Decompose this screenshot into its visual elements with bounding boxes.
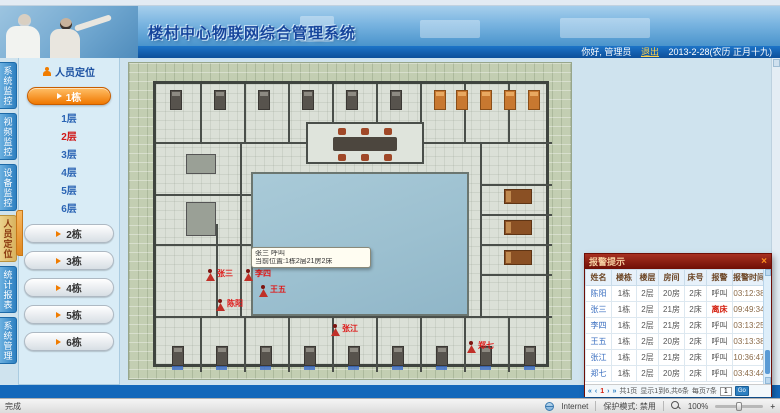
table-cell: 10:36:47 <box>733 350 766 366</box>
building-button-label: 1栋 <box>66 89 82 104</box>
table-row[interactable]: 郑七1栋2层20房2床呼叫03:43:44 <box>586 366 766 382</box>
zoom-slider-thumb[interactable] <box>736 402 742 411</box>
table-cell: 2床 <box>685 334 707 350</box>
floor-link-1[interactable]: 1层 <box>19 110 119 125</box>
status-bar: 完成 Internet 保护模式: 禁用 100% + <box>0 398 780 413</box>
table-cell: 1栋 <box>612 350 637 366</box>
table-cell: 2床 <box>685 302 707 318</box>
table-cell: 离床 <box>707 302 733 318</box>
person-marker[interactable]: 王五 <box>259 285 286 297</box>
divider <box>663 401 664 411</box>
sidebar-collapse-handle[interactable] <box>16 210 23 256</box>
floor-link-5[interactable]: 5层 <box>19 182 119 197</box>
table-cell: 呼叫 <box>707 366 733 382</box>
table-row[interactable]: 王五1栋2层20房2床呼叫03:13:38 <box>586 334 766 350</box>
floor-list: 1层2层3层4层5层6层 <box>19 110 119 215</box>
alarm-popup-titlebar[interactable]: 报警提示 × <box>585 254 771 269</box>
table-cell: 1栋 <box>612 302 637 318</box>
pagination-info: 显示1到6,共6条 <box>640 386 689 396</box>
table-cell: 王五 <box>586 334 612 350</box>
person-marker-icon <box>259 285 268 297</box>
alarm-table: 姓名楼栋楼层房间床号报警报警时间 陈阳1栋2层20房2床呼叫03:12:38张三… <box>585 269 766 382</box>
scroll-down-arrow[interactable] <box>765 377 771 384</box>
person-marker-icon <box>216 299 225 311</box>
person-marker-name: 张江 <box>342 324 358 333</box>
table-cell: 2床 <box>685 286 707 302</box>
alarm-tooltip: 张三 呼叫 当前位置:1栋2层21房2床 <box>251 247 371 268</box>
table-row[interactable]: 李四1栋2层21房2床呼叫03:13:25 <box>586 318 766 334</box>
page-title: 楼村中心物联网综合管理系统 <box>148 22 356 43</box>
person-marker-icon <box>206 269 215 281</box>
table-cell: 03:13:38 <box>733 334 766 350</box>
next-page-button[interactable]: › <box>607 388 609 395</box>
photo-person <box>74 14 112 31</box>
photo-person <box>50 29 80 58</box>
table-cell: 2床 <box>685 366 707 382</box>
side-tab-2[interactable]: 视频监控 <box>0 113 17 160</box>
table-cell: 呼叫 <box>707 318 733 334</box>
floorplan-canvas[interactable]: 张三李四王五陈阳张江郑七 张三 呼叫 当前位置:1栋2层21房2床 <box>128 62 572 380</box>
table-cell: 2层 <box>637 286 659 302</box>
side-tab-1[interactable]: 系统监控 <box>0 62 17 109</box>
person-marker-name: 郑七 <box>478 341 494 350</box>
table-cell: 呼叫 <box>707 350 733 366</box>
table-cell: 张江 <box>586 350 612 366</box>
date-text: 2013-2-28(农历 正月十九) <box>668 47 772 57</box>
status-right-cluster: Internet 保护模式: 禁用 100% + <box>545 401 775 412</box>
table-row[interactable]: 张三1栋2层21房2床离床09:49:34 <box>586 302 766 318</box>
status-text: 完成 <box>5 401 21 412</box>
table-cell: 21房 <box>659 350 685 366</box>
column-header: 报警时间 <box>733 270 766 286</box>
table-cell: 20房 <box>659 334 685 350</box>
panel-header: 人员定位 <box>19 64 119 79</box>
arrow-icon <box>56 258 61 264</box>
column-header: 床号 <box>685 270 707 286</box>
table-cell: 03:13:25 <box>733 318 766 334</box>
side-tab-6[interactable]: 系统管理 <box>0 317 17 364</box>
panel-title: 人员定位 <box>55 64 95 79</box>
building-button-label: 4栋 <box>66 280 82 295</box>
scroll-up-arrow[interactable] <box>765 269 771 276</box>
side-tab-3[interactable]: 设备监控 <box>0 164 17 211</box>
side-tab-4[interactable]: 人员定位 <box>0 215 17 262</box>
alarm-popup-title: 报警提示 <box>589 255 625 268</box>
zone-label: Internet <box>561 402 588 411</box>
zoom-level[interactable]: 100% <box>688 402 708 411</box>
column-header: 楼栋 <box>612 270 637 286</box>
person-marker-icon <box>467 341 476 353</box>
prev-page-button[interactable]: ‹ <box>595 388 597 395</box>
person-marker-icon <box>331 324 340 336</box>
banner-decoration <box>560 18 650 38</box>
arrow-icon <box>57 93 62 99</box>
arrow-icon <box>56 231 61 237</box>
building-button-4[interactable]: 4栋 <box>24 278 114 297</box>
table-cell: 呼叫 <box>707 334 733 350</box>
floor-link-2[interactable]: 2层 <box>19 128 119 143</box>
building-button-label: 2栋 <box>66 226 82 241</box>
building-button-1[interactable]: 1栋 <box>27 87 111 105</box>
photo-person <box>6 26 40 58</box>
protected-mode-label: 保护模式: 禁用 <box>603 401 655 412</box>
zoom-slider[interactable] <box>715 405 763 408</box>
table-cell: 1栋 <box>612 318 637 334</box>
table-cell: 陈阳 <box>586 286 612 302</box>
building-button-2[interactable]: 2栋 <box>24 224 114 243</box>
internet-zone-icon <box>545 402 554 411</box>
table-cell: 郑七 <box>586 366 612 382</box>
person-marker-icon <box>244 269 253 281</box>
table-cell: 李四 <box>586 318 612 334</box>
column-header: 报警 <box>707 270 733 286</box>
person-marker-name: 陈阳 <box>227 299 243 308</box>
table-row[interactable]: 张江1栋2层21房2床呼叫10:36:47 <box>586 350 766 366</box>
person-marker[interactable]: 李四 <box>244 269 271 281</box>
table-cell: 1栋 <box>612 286 637 302</box>
building-button-label: 5栋 <box>66 307 82 322</box>
table-cell: 2层 <box>637 366 659 382</box>
scrollbar-thumb[interactable] <box>765 350 770 374</box>
column-header: 楼层 <box>637 270 659 286</box>
alarm-table-header-row: 姓名楼栋楼层房间床号报警报警时间 <box>586 270 766 286</box>
table-cell: 2层 <box>637 302 659 318</box>
table-cell: 2层 <box>637 334 659 350</box>
floor-link-3[interactable]: 3层 <box>19 146 119 161</box>
person-icon <box>43 67 51 76</box>
floor-link-6[interactable]: 6层 <box>19 200 119 215</box>
building-button-label: 6栋 <box>66 334 82 349</box>
first-page-button[interactable]: « <box>588 388 592 395</box>
go-button[interactable]: Go <box>735 386 749 396</box>
table-cell: 21房 <box>659 302 685 318</box>
last-page-button[interactable]: » <box>613 388 617 395</box>
side-tab-5[interactable]: 统计报表 <box>0 266 17 313</box>
table-cell: 1栋 <box>612 366 637 382</box>
building-button-3[interactable]: 3栋 <box>24 251 114 270</box>
person-marker[interactable]: 郑七 <box>467 341 494 353</box>
column-header: 姓名 <box>586 270 612 286</box>
banner-photo <box>0 6 138 58</box>
arrow-icon <box>56 312 61 318</box>
building-button-6[interactable]: 6栋 <box>24 332 114 351</box>
alarm-popup: 报警提示 × 姓名楼栋楼层房间床号报警报警时间 陈阳1栋2层20房2床呼叫03:… <box>584 253 772 397</box>
table-cell: 09:49:34 <box>733 302 766 318</box>
column-header: 房间 <box>659 270 685 286</box>
building-button-5[interactable]: 5栋 <box>24 305 114 324</box>
banner-decoration <box>420 20 480 38</box>
person-marker[interactable]: 张江 <box>331 324 358 336</box>
alarm-pagination: « ‹ 1 › » 共1页 显示1到6,共6条 每页7条 Go <box>585 384 771 397</box>
zoom-in-button[interactable]: + <box>770 402 775 411</box>
tooltip-line1: 张三 呼叫 <box>255 250 367 258</box>
table-row[interactable]: 陈阳1栋2层20房2床呼叫03:12:38 <box>586 286 766 302</box>
table-cell: 2层 <box>637 350 659 366</box>
markers-layer: 张三李四王五陈阳张江郑七 <box>129 63 573 381</box>
table-cell: 2床 <box>685 350 707 366</box>
floor-link-4[interactable]: 4层 <box>19 164 119 179</box>
table-cell: 03:12:38 <box>733 286 766 302</box>
person-marker-name: 张三 <box>217 269 233 278</box>
per-page-label: 每页7条 <box>692 386 717 396</box>
alarm-table-body: 姓名楼栋楼层房间床号报警报警时间 陈阳1栋2层20房2床呼叫03:12:38张三… <box>585 269 771 384</box>
person-marker[interactable]: 陈阳 <box>216 299 243 311</box>
table-cell: 2层 <box>637 318 659 334</box>
page-count-label: 共1页 <box>619 386 637 396</box>
person-marker-name: 李四 <box>255 269 271 278</box>
screen: 楼村中心物联网综合管理系统 你好, 管理员 退出 2013-2-28(农历 正月… <box>0 0 780 413</box>
scroll-up-arrow[interactable] <box>773 59 780 67</box>
alarm-table-rows: 陈阳1栋2层20房2床呼叫03:12:38张三1栋2层21房2床离床09:49:… <box>586 286 766 382</box>
building-button-label: 3栋 <box>66 253 82 268</box>
arrow-icon <box>56 339 61 345</box>
page-scrollbar[interactable] <box>771 58 780 385</box>
building-list: 2栋3栋4栋5栋6栋 <box>19 224 119 351</box>
person-marker[interactable]: 张三 <box>206 269 233 281</box>
table-cell: 20房 <box>659 366 685 382</box>
page-input[interactable] <box>720 387 732 396</box>
arrow-icon <box>56 285 61 291</box>
table-cell: 21房 <box>659 318 685 334</box>
person-marker-name: 王五 <box>270 285 286 294</box>
greeting-text: 你好, 管理员 <box>581 47 631 57</box>
close-icon[interactable]: × <box>761 257 767 267</box>
current-page: 1 <box>600 388 604 395</box>
table-cell: 1栋 <box>612 334 637 350</box>
zoom-icon <box>671 401 681 411</box>
table-cell: 20房 <box>659 286 685 302</box>
divider <box>595 401 596 411</box>
table-cell: 呼叫 <box>707 286 733 302</box>
alarm-scrollbar[interactable] <box>763 269 771 384</box>
table-cell: 张三 <box>586 302 612 318</box>
tooltip-line2: 当前位置:1栋2层21房2床 <box>255 258 367 266</box>
logout-link[interactable]: 退出 <box>641 47 659 57</box>
sidebar-panel: 人员定位 1栋 1层2层3层4层5层6层 2栋3栋4栋5栋6栋 <box>18 58 120 385</box>
table-cell: 03:43:44 <box>733 366 766 382</box>
table-cell: 2床 <box>685 318 707 334</box>
